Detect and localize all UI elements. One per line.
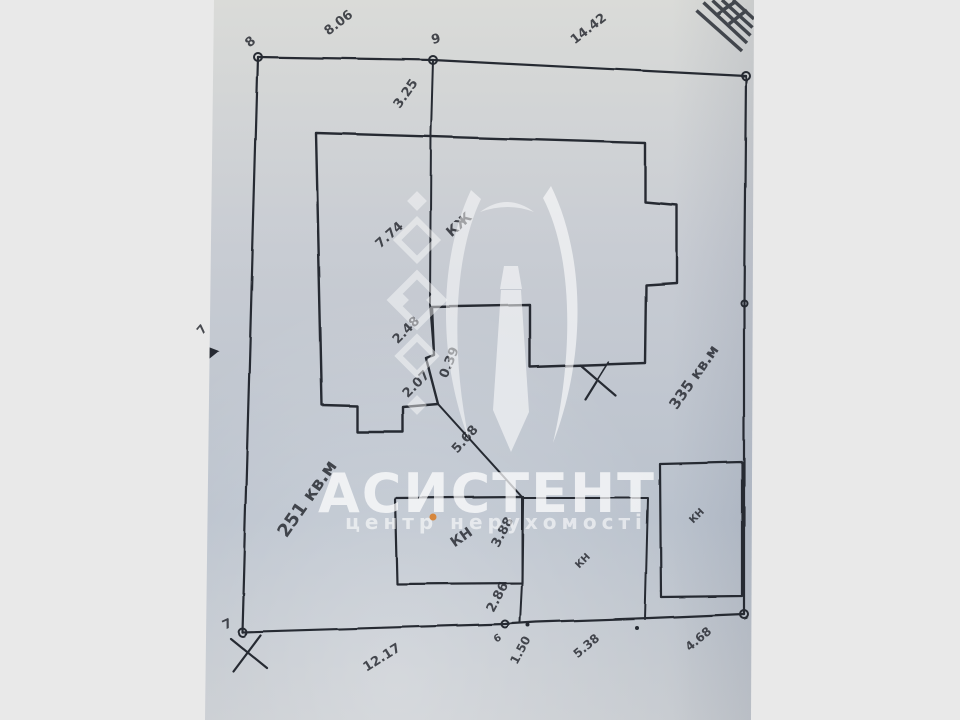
site-plan-svg: 8 8.06 9 14.42 3.25 7.74 КЖ 2.48 0.39 2.…	[0, 0, 960, 720]
small-dot-marker	[635, 626, 639, 630]
paper-edge-shade	[205, 0, 754, 720]
watermark-accent-dot	[430, 514, 437, 521]
watermark-subtitle: центр нерухомості	[345, 510, 647, 534]
scanned-site-plan-photo: 8 8.06 9 14.42 3.25 7.74 КЖ 2.48 0.39 2.…	[0, 0, 960, 720]
small-dot-marker	[526, 623, 530, 627]
